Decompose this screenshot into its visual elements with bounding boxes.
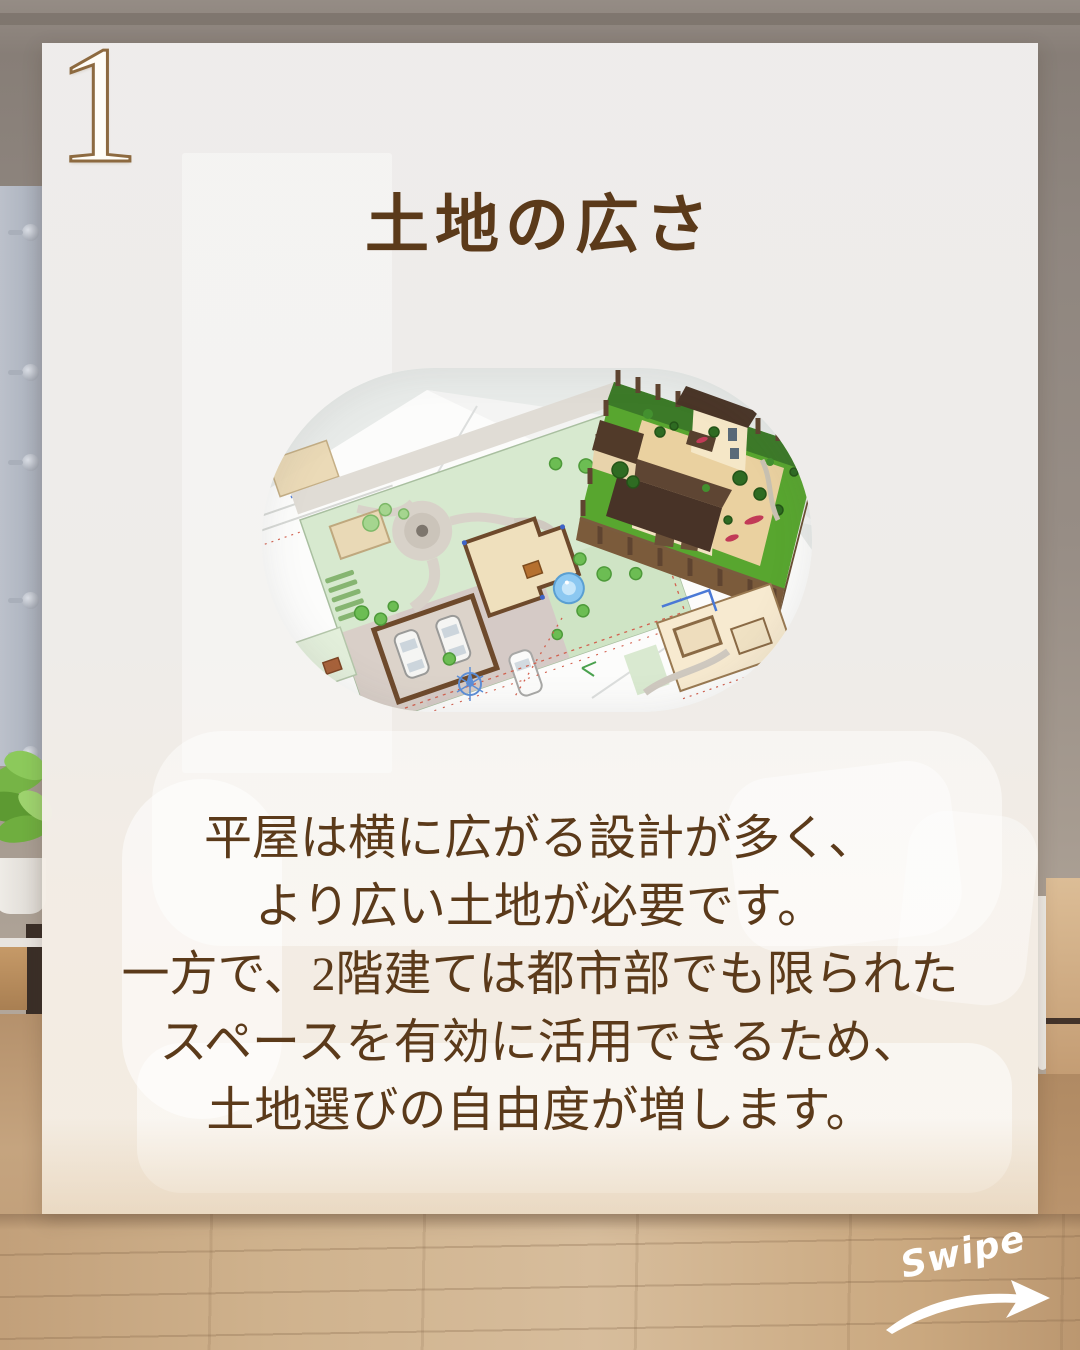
page-title: 土地の広さ [42, 181, 1038, 271]
body-line: より広い土地が必要です。 [42, 873, 1038, 941]
swipe-arrow-icon [884, 1274, 1054, 1334]
body-line: 土地選びの自由度が増します。 [42, 1077, 1038, 1145]
slide-number: 1 [56, 21, 140, 189]
site-plan-illustration [262, 368, 812, 712]
body-line: スペースを有効に活用できるため、 [42, 1009, 1038, 1077]
body-line: 一方で、2階建ては都市部でも限られた [42, 941, 1038, 1009]
glass-panel-knob [22, 364, 39, 381]
glass-panel-knob [22, 454, 39, 471]
site-plan-image [262, 368, 812, 712]
glass-panel-knob [22, 224, 39, 241]
side-table-top [0, 938, 42, 947]
ceiling-shadow [0, 13, 1080, 25]
glass-partition [0, 186, 42, 766]
glass-panel-knob [22, 592, 39, 609]
wood-cabinet [1046, 878, 1080, 1074]
content-card: 1 土地の広さ [42, 43, 1038, 1214]
body-line: 平屋は横に広がる設計が多く、 [42, 805, 1038, 873]
side-table [0, 946, 27, 1010]
body-text: 平屋は横に広がる設計が多く、 より広い土地が必要です。 一方で、2階建ては都市部… [42, 805, 1038, 1145]
carousel-slide[interactable]: 1 土地の広さ [0, 0, 1080, 1350]
plant-pot [0, 858, 46, 914]
swipe-indicator[interactable]: Swipe [880, 1222, 1065, 1337]
